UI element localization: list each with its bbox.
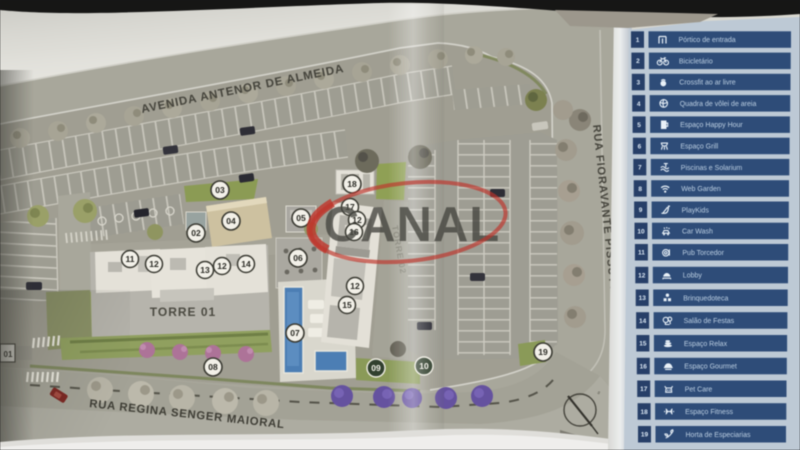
svg-text:02: 02 xyxy=(191,228,201,238)
svg-text:11: 11 xyxy=(126,254,135,264)
svg-text:16: 16 xyxy=(640,363,648,370)
svg-text:Espaço Gourmet: Espaço Gourmet xyxy=(684,364,737,371)
svg-text:Brinquedoteca: Brinquedoteca xyxy=(683,295,728,302)
svg-text:11: 11 xyxy=(638,250,645,257)
svg-text:Web Garden: Web Garden xyxy=(681,186,721,193)
svg-text:14: 14 xyxy=(241,259,251,269)
svg-text:Piscinas e Solarium: Piscinas e Solarium xyxy=(681,165,743,172)
svg-text:04: 04 xyxy=(226,216,236,226)
svg-text:Pet Care: Pet Care xyxy=(685,386,713,393)
svg-text:10: 10 xyxy=(637,228,645,235)
svg-text:Espaço Happy Hour: Espaço Happy Hour xyxy=(680,122,743,129)
svg-text:Quadra de vôlei de areia: Quadra de vôlei de areia xyxy=(680,101,757,108)
svg-text:5: 5 xyxy=(637,122,641,129)
svg-text:13: 13 xyxy=(200,265,210,275)
svg-text:Horta de Especiarias: Horta de Especiarias xyxy=(686,432,751,439)
svg-text:17: 17 xyxy=(640,386,648,393)
svg-text:18: 18 xyxy=(347,179,357,189)
svg-text:18: 18 xyxy=(640,409,648,416)
svg-text:08: 08 xyxy=(208,362,218,372)
svg-text:TORRE 01: TORRE 01 xyxy=(150,305,216,319)
svg-text:Lobby: Lobby xyxy=(683,273,703,280)
svg-text:12: 12 xyxy=(149,259,159,269)
svg-text:03: 03 xyxy=(215,185,225,195)
svg-text:6: 6 xyxy=(638,143,642,150)
svg-text:Espaço Fitness: Espaço Fitness xyxy=(685,409,733,416)
svg-text:Salão de Festas: Salão de Festas xyxy=(684,318,735,325)
svg-text:8: 8 xyxy=(638,186,642,193)
svg-text:12: 12 xyxy=(638,272,646,279)
svg-text:05: 05 xyxy=(296,213,306,223)
svg-text:19: 19 xyxy=(538,347,548,357)
svg-text:09: 09 xyxy=(371,363,381,373)
svg-text:9: 9 xyxy=(639,207,643,214)
svg-text:2: 2 xyxy=(636,58,640,65)
svg-text:7: 7 xyxy=(638,165,642,172)
svg-text:Espaço Grill: Espaço Grill xyxy=(680,144,718,151)
svg-text:15: 15 xyxy=(639,341,647,348)
svg-text:07: 07 xyxy=(290,328,300,338)
svg-text:Espaço Relax: Espaço Relax xyxy=(684,341,728,348)
svg-text:14: 14 xyxy=(639,318,647,325)
svg-text:13: 13 xyxy=(639,295,647,302)
svg-text:Bicicletário: Bicicletário xyxy=(679,58,713,65)
svg-text:06: 06 xyxy=(293,253,303,263)
svg-text:4: 4 xyxy=(637,101,641,108)
svg-text:12: 12 xyxy=(217,261,227,271)
svg-text:12: 12 xyxy=(350,281,360,291)
svg-text:Pórtico de entrada: Pórtico de entrada xyxy=(679,37,736,44)
svg-text:Pub Torcedor: Pub Torcedor xyxy=(682,250,724,257)
svg-text:19: 19 xyxy=(641,432,649,439)
svg-text:PlayKids: PlayKids xyxy=(682,207,710,214)
svg-text:Crossfit ao ar livre: Crossfit ao ar livre xyxy=(679,80,736,87)
svg-text:15: 15 xyxy=(342,300,352,310)
svg-text:1: 1 xyxy=(636,37,640,44)
svg-text:Car Wash: Car Wash xyxy=(682,229,713,236)
svg-text:3: 3 xyxy=(636,80,640,87)
